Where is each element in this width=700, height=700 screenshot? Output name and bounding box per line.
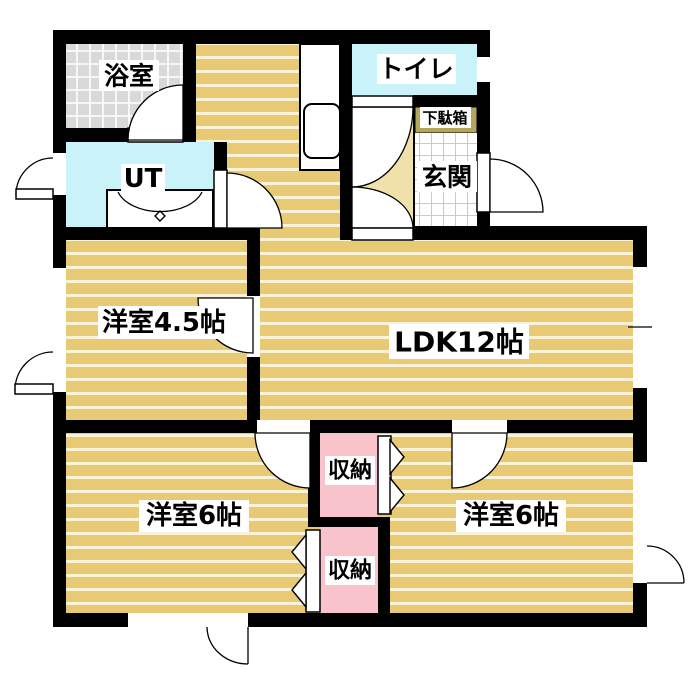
entrance-label: 玄関	[422, 163, 472, 192]
room-right-window-swing	[647, 546, 684, 583]
bath-label: 浴室	[104, 62, 154, 91]
wall-ldk-top	[413, 226, 647, 240]
shoe-cabinet-label: 下駄箱	[422, 109, 467, 127]
corridor-door-swings	[352, 107, 413, 228]
closet-lower-folding-strip	[306, 530, 320, 612]
entrance-door-leaf	[477, 153, 490, 212]
corridor-ldk-door-leaf	[352, 228, 413, 240]
room45-window-leaf	[15, 384, 53, 394]
utility-label: UT	[124, 164, 163, 194]
wall-closet-divider	[308, 517, 390, 527]
utility-vanity	[107, 190, 213, 228]
room6-left-label: 洋室6帖	[146, 500, 242, 531]
window-room-right	[633, 462, 647, 583]
window-utility	[53, 153, 66, 195]
bottom-window-swing	[207, 627, 248, 664]
wall-top	[53, 30, 490, 44]
window-bottom	[128, 613, 248, 627]
entrance-door-swing	[490, 159, 543, 212]
storage-upper-label: 収納	[328, 458, 372, 484]
window-room45	[53, 268, 66, 392]
wall-kitchen-corridor	[340, 30, 352, 240]
room6-right-label: 洋室6帖	[463, 500, 559, 531]
wall-closet-lower-right	[378, 527, 390, 613]
ldk-label: LDK12帖	[394, 326, 524, 359]
wall-bath-right	[183, 44, 196, 128]
room45-label: 洋室4.5帖	[102, 307, 226, 338]
utility-door-leaf	[214, 170, 227, 228]
wall-rooms-top	[53, 420, 647, 433]
floor-plan-drawing: 浴室 UT トイレ 下駄箱 玄関 洋室4.5帖 LDK12帖 収納 収納 洋室6…	[0, 0, 700, 700]
wall-corridor-genkan-line	[413, 107, 415, 228]
closet-upper-folding-strip	[378, 436, 391, 514]
floor-plan: 浴室 UT トイレ 下駄箱 玄関 洋室4.5帖 LDK12帖 収納 収納 洋室6…	[0, 0, 700, 700]
door-gap-room-left	[257, 420, 310, 433]
toilet-label: トイレ	[378, 55, 453, 84]
utility-window-leaf	[16, 189, 53, 199]
kitchen-sink	[304, 104, 340, 158]
storage-lower-label: 収納	[328, 558, 372, 584]
door-gap-room-right	[452, 420, 507, 433]
window-toilet	[477, 57, 490, 82]
toilet-door-leaf	[352, 96, 413, 107]
